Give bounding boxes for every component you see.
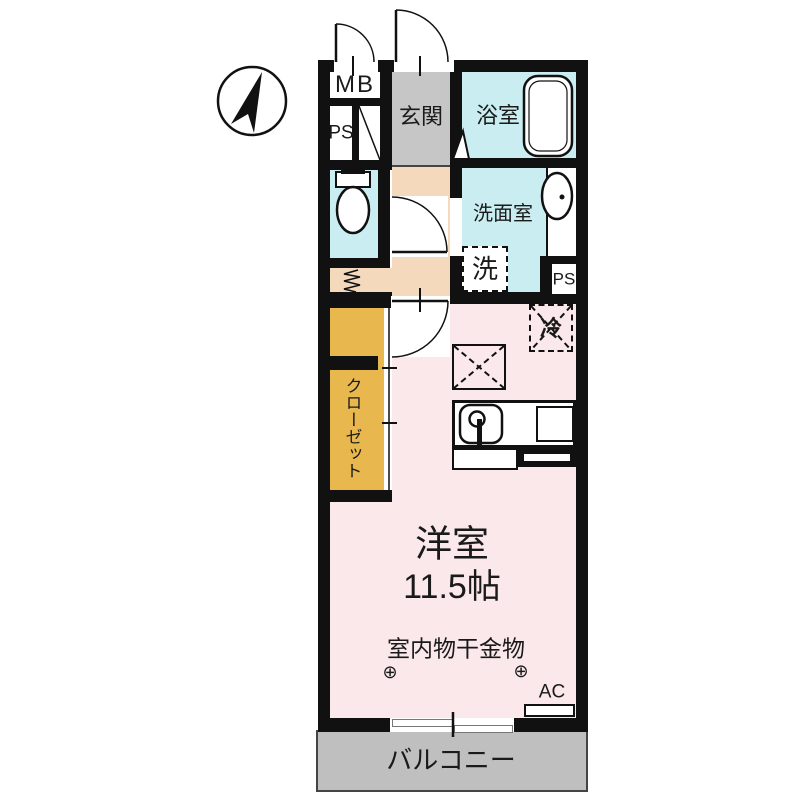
wall-bath-bottom xyxy=(450,158,576,168)
air-conditioner-box xyxy=(524,704,575,717)
kitchen-cabinet xyxy=(452,448,518,470)
opening-entrance-door xyxy=(394,60,454,72)
balcony-window-panel-right xyxy=(454,725,513,733)
wall-closet-bottom xyxy=(318,490,392,502)
opening-washroom-door xyxy=(450,198,462,256)
wall-hall-room xyxy=(318,292,392,308)
door-area-main-room xyxy=(391,296,450,357)
compass-icon xyxy=(218,67,286,135)
shaft-diagonal-box xyxy=(359,106,380,160)
label-main-room-size: 11.5帖 xyxy=(403,570,501,604)
wall-right xyxy=(576,60,588,732)
label-washroom: 洗面室 xyxy=(473,204,533,224)
wall-toilet-right xyxy=(378,170,390,268)
wall-mb-entrance xyxy=(380,72,392,170)
label-pipe-space-top: PS xyxy=(328,124,353,143)
wall-mb-bottom xyxy=(330,98,380,106)
kitchen-hanging-wall-slot xyxy=(524,454,570,461)
laundry-anchor-left-icon: ⊕ xyxy=(382,663,397,681)
balcony-window-panel-left xyxy=(392,719,454,727)
label-main-room: 洋室 xyxy=(415,526,489,563)
wall-toilet-bottom xyxy=(318,258,390,268)
label-meter-box: MB xyxy=(335,73,375,97)
counter-square-box xyxy=(452,344,506,390)
label-air-conditioner: AC xyxy=(539,683,565,702)
wall-toilet-top xyxy=(318,160,392,170)
basin-counter xyxy=(546,168,576,256)
label-entrance: 玄関 xyxy=(399,106,443,128)
room-toilet xyxy=(330,170,378,258)
label-closet: クローゼット xyxy=(344,377,361,479)
laundry-anchor-right-icon: ⊕ xyxy=(513,662,528,680)
label-refrigerator: 冷 xyxy=(540,318,562,340)
wall-entrance-bath xyxy=(450,60,462,170)
door-area-washroom xyxy=(390,196,448,257)
wall-closet-divider xyxy=(318,356,378,370)
label-balcony: バルコニー xyxy=(386,747,515,773)
label-washing-machine: 洗 xyxy=(472,256,498,282)
label-pipe-space-right: PS xyxy=(553,271,576,288)
stove xyxy=(536,406,574,442)
floor-plan: MB PS 玄関 浴室 洗面室 洗 PS クローゼット 冷 洋室 11.5帖 室… xyxy=(0,0,800,800)
label-laundry-hardware: 室内物干金物 xyxy=(387,638,525,661)
label-bathroom: 浴室 xyxy=(476,105,520,127)
